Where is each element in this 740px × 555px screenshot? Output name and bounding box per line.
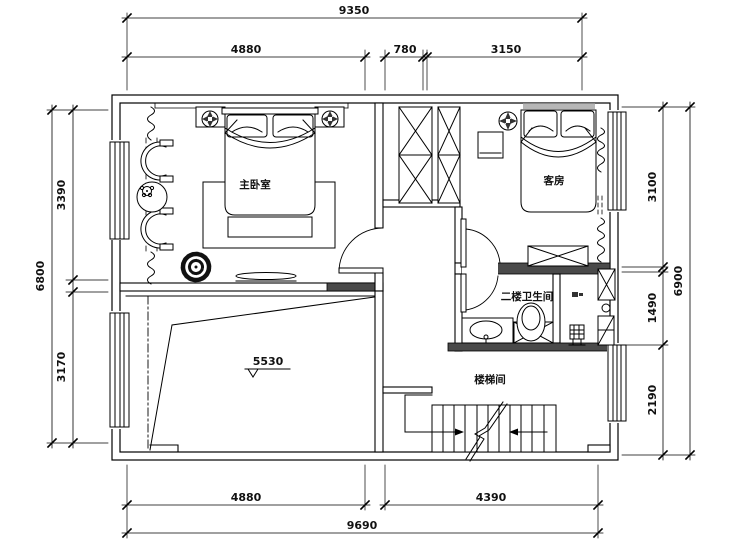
wall-niche-band (523, 103, 595, 109)
bathroom-door (461, 274, 498, 312)
doors (339, 219, 500, 312)
dim-top-overall: 9350 (339, 4, 370, 17)
dim-top-1: 4880 (231, 43, 262, 56)
window-left-upper (109, 140, 131, 240)
bath-cabinet (598, 269, 615, 345)
guest-bench (528, 246, 588, 266)
floor-plan-canvas: 主卧室 (0, 0, 740, 555)
bed-foot-bench (228, 217, 312, 237)
bathroom: 二楼卫生间 (462, 269, 615, 345)
floor-drain (569, 325, 585, 345)
shower-glyph (572, 292, 583, 297)
nightstand-right (315, 107, 344, 127)
dim-right-3: 2190 (646, 384, 659, 415)
guest-room: 客房 (478, 103, 605, 266)
guest-room-label: 客房 (543, 174, 565, 187)
guest-room-door (461, 219, 500, 275)
master-bedroom: 主卧室 (137, 103, 348, 284)
dim-bottom-overall: 9690 (347, 519, 378, 532)
guest-cabinet (478, 132, 503, 158)
elevation-marker: 5530 (245, 355, 290, 377)
dimension-left: 3390 3170 6800 (34, 105, 108, 448)
floor-plan-drawing: 主卧室 (0, 0, 740, 555)
dim-bottom-1: 4880 (231, 491, 262, 504)
dim-right-1: 3100 (646, 171, 659, 202)
dim-left-1: 3390 (55, 179, 68, 210)
dim-top-2: 780 (394, 43, 417, 56)
dim-right-overall: 6900 (672, 265, 685, 296)
elevation-value: 5530 (253, 355, 284, 368)
stair-treads (432, 405, 556, 452)
window-left-lower (109, 311, 131, 429)
dimension-top: 9350 4880 780 3150 (122, 4, 587, 90)
void-room: 5530 (126, 296, 375, 450)
stair-hall: 楼梯间 (405, 373, 556, 461)
master-bed (222, 108, 318, 215)
bathroom-label: 二楼卫生间 (501, 290, 554, 303)
window-right-lower (607, 343, 629, 423)
master-door (339, 228, 384, 273)
dimension-bottom: 4880 4390 9690 (122, 465, 603, 538)
guest-lamp (499, 112, 517, 130)
dim-right-2: 1490 (646, 292, 659, 323)
plant (183, 254, 209, 280)
window-right-upper (607, 110, 629, 212)
dim-bottom-2: 4390 (476, 491, 507, 504)
guest-bed (521, 110, 596, 212)
dim-top-3: 3150 (491, 43, 522, 56)
dim-left-overall: 6800 (34, 260, 47, 291)
master-bedroom-label: 主卧室 (239, 178, 271, 191)
dim-left-2: 3170 (55, 351, 68, 382)
tv-console (236, 273, 296, 282)
wardrobe-closet (399, 107, 460, 203)
nightstand-left (196, 107, 225, 127)
dimension-right: 3100 1490 2190 6900 (622, 102, 695, 460)
side-table (137, 182, 167, 212)
slope-line (150, 297, 375, 450)
curtain-right (598, 128, 605, 262)
toilet (514, 303, 553, 343)
stair-hall-label: 楼梯间 (474, 373, 506, 386)
vanity-sink (462, 318, 513, 343)
